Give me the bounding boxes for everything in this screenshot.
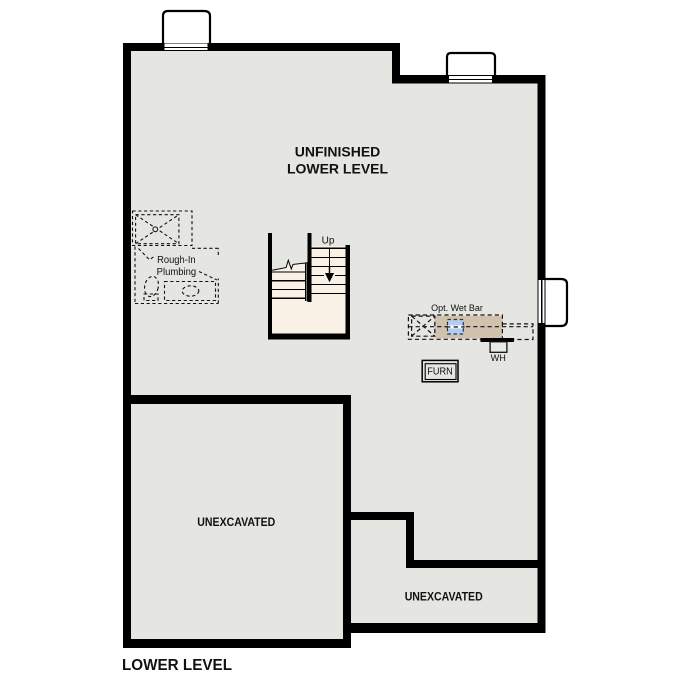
- svg-text:Opt. Wet Bar: Opt. Wet Bar: [431, 303, 483, 313]
- svg-text:Rough-In: Rough-In: [157, 255, 196, 266]
- svg-text:UNFINISHED: UNFINISHED: [295, 143, 381, 159]
- svg-text:LOWER LEVEL: LOWER LEVEL: [122, 657, 232, 674]
- svg-text:LOWER LEVEL: LOWER LEVEL: [287, 161, 389, 177]
- svg-text:Up: Up: [322, 235, 335, 246]
- svg-text:UNEXCAVATED: UNEXCAVATED: [405, 590, 483, 604]
- svg-text:WH: WH: [491, 353, 506, 363]
- svg-text:UNEXCAVATED: UNEXCAVATED: [197, 515, 275, 529]
- svg-text:Plumbing: Plumbing: [157, 267, 197, 278]
- svg-text:FURN: FURN: [427, 366, 452, 377]
